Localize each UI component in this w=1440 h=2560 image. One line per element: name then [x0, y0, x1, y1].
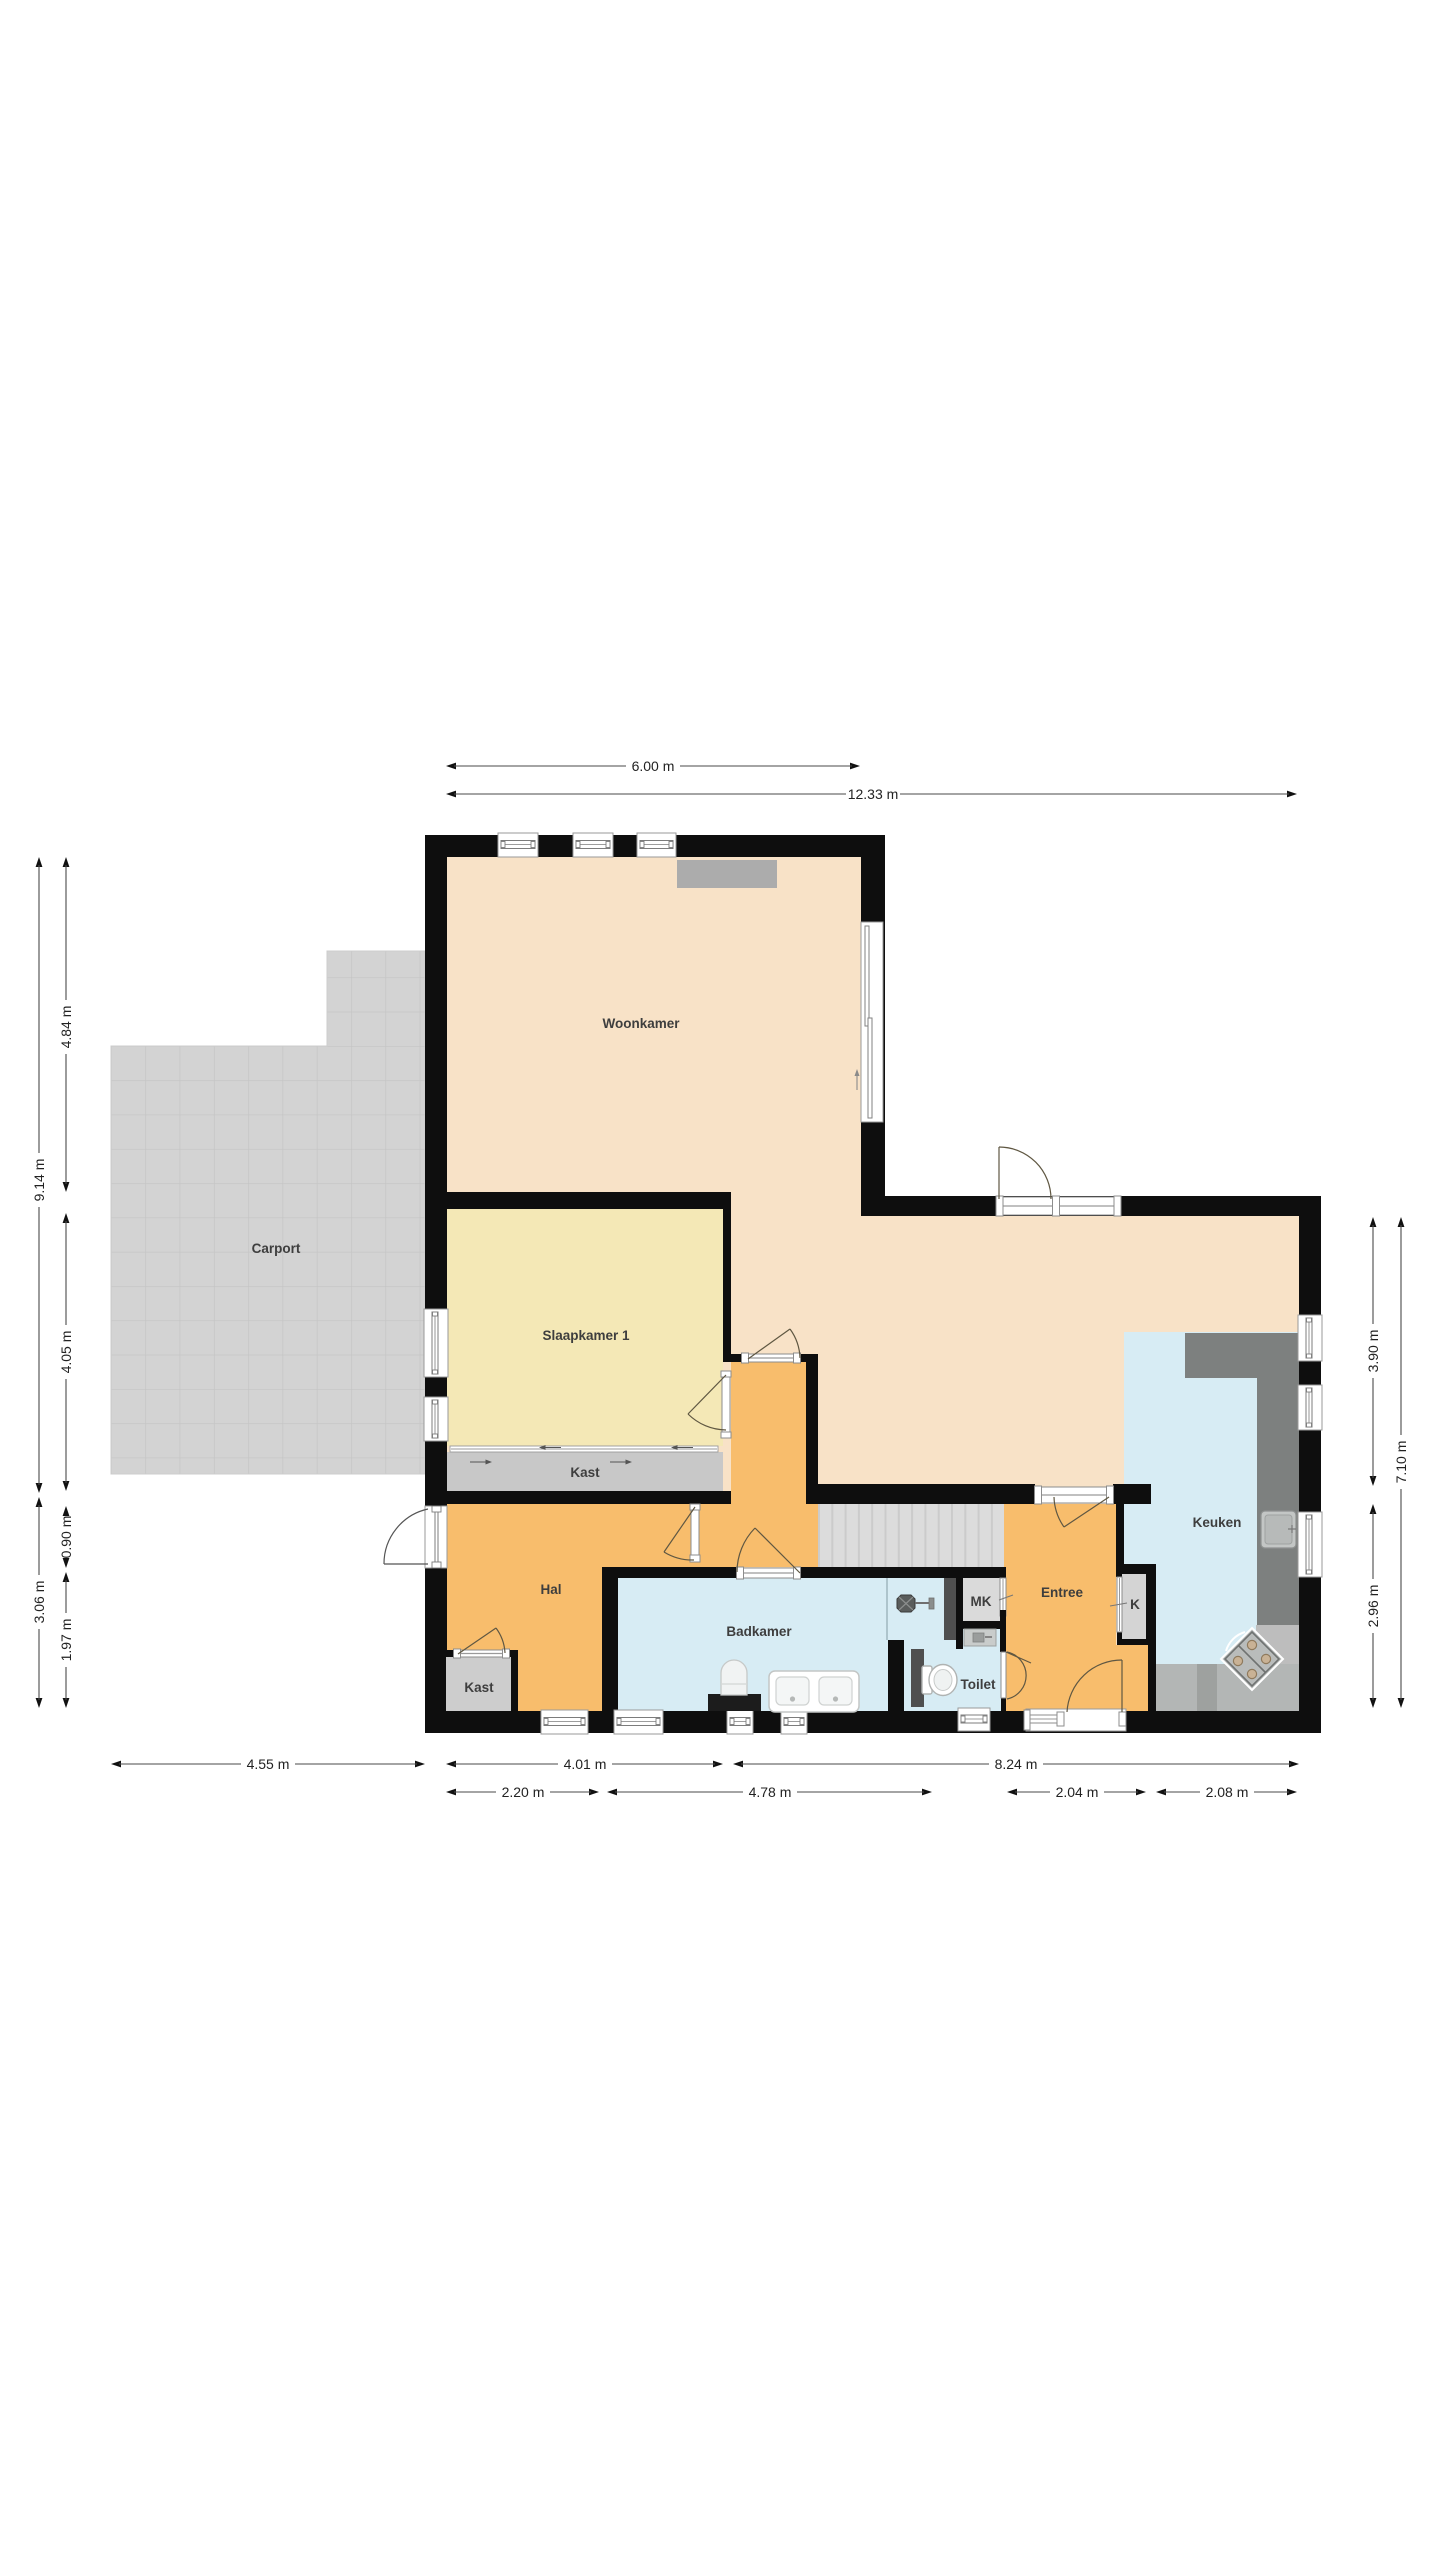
svg-text:Keuken: Keuken: [1193, 1515, 1242, 1530]
svg-text:7.10 m: 7.10 m: [1393, 1441, 1409, 1484]
svg-text:Entree: Entree: [1041, 1585, 1084, 1600]
svg-text:2.96 m: 2.96 m: [1365, 1585, 1381, 1628]
svg-text:K: K: [1130, 1597, 1140, 1612]
svg-text:Slaapkamer 1: Slaapkamer 1: [542, 1328, 630, 1343]
svg-text:2.08 m: 2.08 m: [1206, 1784, 1249, 1800]
svg-text:8.24 m: 8.24 m: [995, 1756, 1038, 1772]
svg-text:Carport: Carport: [252, 1241, 301, 1256]
svg-text:Kast: Kast: [570, 1465, 600, 1480]
svg-text:9.14 m: 9.14 m: [31, 1159, 47, 1202]
svg-text:4.05 m: 4.05 m: [58, 1331, 74, 1374]
svg-text:4.55 m: 4.55 m: [247, 1756, 290, 1772]
svg-text:Badkamer: Badkamer: [726, 1624, 792, 1639]
svg-text:2.04 m: 2.04 m: [1056, 1784, 1099, 1800]
svg-text:Woonkamer: Woonkamer: [602, 1016, 680, 1031]
svg-text:12.33 m: 12.33 m: [848, 786, 899, 802]
svg-text:4.84 m: 4.84 m: [58, 1006, 74, 1049]
svg-text:MK: MK: [971, 1594, 992, 1609]
svg-text:6.00 m: 6.00 m: [632, 758, 675, 774]
svg-text:2.20 m: 2.20 m: [502, 1784, 545, 1800]
svg-text:1.97 m: 1.97 m: [58, 1619, 74, 1662]
svg-text:4.78 m: 4.78 m: [749, 1784, 792, 1800]
svg-text:3.06 m: 3.06 m: [31, 1581, 47, 1624]
svg-text:4.01 m: 4.01 m: [564, 1756, 607, 1772]
svg-text:Hal: Hal: [540, 1582, 561, 1597]
svg-text:Kast: Kast: [464, 1680, 494, 1695]
svg-text:Toilet: Toilet: [961, 1677, 997, 1692]
svg-text:3.90 m: 3.90 m: [1365, 1330, 1381, 1373]
svg-text:0.90 m: 0.90 m: [58, 1516, 74, 1559]
